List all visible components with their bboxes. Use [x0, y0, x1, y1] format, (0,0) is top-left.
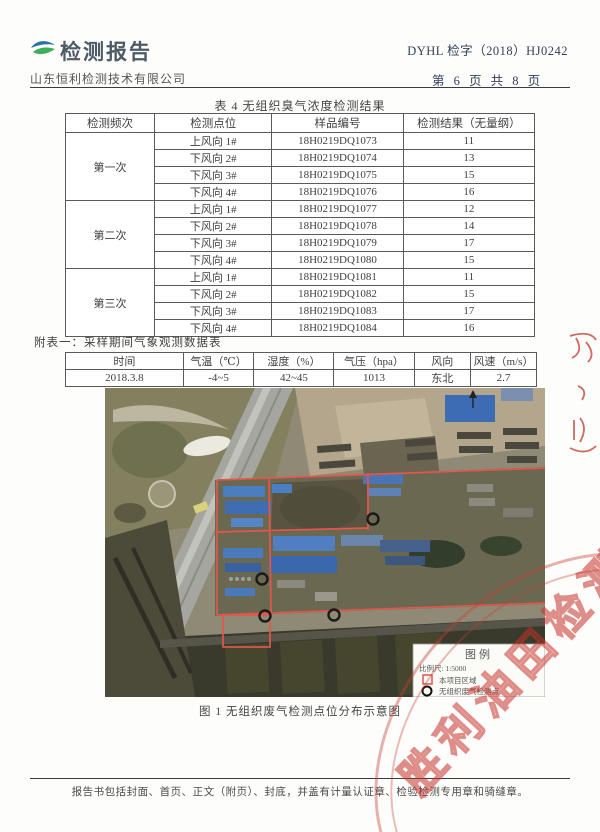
legend-area-label: 本项目区域 — [439, 675, 477, 685]
col-humidity: 湿度（%） — [254, 353, 334, 370]
sample-cell: 18H0219DQ1078 — [272, 218, 403, 235]
figure-caption: 图 1 无组织废气检测点位分布示意图 — [0, 703, 600, 719]
sample-cell: 18H0219DQ1083 — [272, 303, 403, 320]
frequency-cell: 第二次 — [66, 201, 155, 269]
result-cell: 17 — [403, 235, 534, 252]
company-logo-icon — [30, 38, 56, 65]
sample-cell: 18H0219DQ1079 — [272, 235, 403, 252]
sample-cell: 18H0219DQ1075 — [272, 167, 403, 184]
result-cell: 12 — [403, 201, 534, 218]
table-row: 第一次 上风向 1# 18H0219DQ1073 11 — [66, 133, 535, 150]
annex-table-label: 附表一：采样期间气象观测数据表 — [34, 334, 222, 350]
weather-data-row: 2018.3.8 -4~5 42~45 1013 东北 2.7 — [66, 370, 537, 387]
sample-cell: 18H0219DQ1077 — [272, 201, 403, 218]
report-title: 检测报告 — [60, 36, 152, 66]
sample-cell: 18H0219DQ1073 — [272, 133, 403, 150]
col-sample-id: 样品编号 — [272, 114, 403, 133]
legend-scale: 比例尺: 1:5000 — [419, 663, 467, 673]
table-row: 第二次 上风向 1# 18H0219DQ1077 12 — [66, 201, 535, 218]
result-cell: 11 — [403, 133, 534, 150]
wind-speed-cell: 2.7 — [471, 370, 537, 387]
result-cell: 16 — [403, 320, 534, 337]
result-cell: 15 — [403, 252, 534, 269]
legend-point-label: 无组织废气检测点 — [439, 686, 499, 696]
result-cell: 14 — [403, 218, 534, 235]
point-cell: 下风向 2# — [155, 286, 272, 303]
point-cell: 下风向 4# — [155, 184, 272, 201]
header-divider — [30, 87, 570, 88]
result-cell: 11 — [403, 269, 534, 286]
point-cell: 下风向 3# — [155, 303, 272, 320]
map-legend: 图例 比例尺: 1:5000 本项目区域 无组织废气检测点 — [413, 644, 545, 697]
humidity-cell: 42~45 — [254, 370, 334, 387]
report-page: 检测报告 山东恒利检测技术有限公司 DYHL 检字（2018）HJ0242 第 … — [0, 0, 600, 832]
result-cell: 15 — [403, 286, 534, 303]
point-cell: 上风向 1# — [155, 201, 272, 218]
point-cell: 下风向 2# — [155, 218, 272, 235]
header-right: DYHL 检字（2018）HJ0242 第 6 页 共 8 页 — [407, 40, 568, 89]
col-wind-direction: 风向 — [414, 353, 471, 370]
footer-divider — [30, 778, 570, 779]
result-cell: 13 — [403, 150, 534, 167]
temperature-cell: -4~5 — [183, 370, 254, 387]
table-row: 第三次 上风向 1# 18H0219DQ1081 11 — [66, 269, 535, 286]
col-frequency: 检测频次 — [66, 114, 155, 133]
point-cell: 上风向 1# — [155, 133, 272, 150]
sample-cell: 18H0219DQ1076 — [272, 184, 403, 201]
red-handwriting-marks — [562, 328, 600, 473]
sample-cell: 18H0219DQ1081 — [272, 269, 403, 286]
col-point: 检测点位 — [155, 114, 272, 133]
wind-direction-cell: 东北 — [414, 370, 471, 387]
weather-header-row: 时间 气温（℃） 湿度（%） 气压（hpa） 风向 风速（m/s） — [66, 353, 537, 370]
point-cell: 下风向 4# — [155, 252, 272, 269]
point-cell: 下风向 3# — [155, 167, 272, 184]
site-satellite-map: 图例 比例尺: 1:5000 本项目区域 无组织废气检测点 — [105, 388, 545, 697]
table4-title: 表 4 无组织臭气浓度检测结果 — [0, 97, 600, 114]
col-result: 检测结果（无量纲） — [403, 114, 534, 133]
col-pressure: 气压（hpa） — [334, 353, 414, 370]
time-cell: 2018.3.8 — [66, 370, 184, 387]
sample-cell: 18H0219DQ1074 — [272, 150, 403, 167]
odor-results-table: 检测频次 检测点位 样品编号 检测结果（无量纲） 第一次 上风向 1# 18H0… — [65, 113, 535, 337]
weather-table: 时间 气温（℃） 湿度（%） 气压（hpa） 风向 风速（m/s） 2018.3… — [65, 352, 537, 387]
col-time: 时间 — [66, 353, 184, 370]
frequency-cell: 第三次 — [66, 269, 155, 337]
result-cell: 16 — [403, 184, 534, 201]
table-header-row: 检测频次 检测点位 样品编号 检测结果（无量纲） — [66, 114, 535, 133]
legend-title: 图例 — [465, 647, 493, 661]
result-cell: 15 — [403, 167, 534, 184]
sample-cell: 18H0219DQ1084 — [272, 320, 403, 337]
point-cell: 上风向 1# — [155, 269, 272, 286]
report-number: DYHL 检字（2018）HJ0242 — [407, 40, 568, 59]
frequency-cell: 第一次 — [66, 133, 155, 201]
col-wind-speed: 风速（m/s） — [471, 353, 537, 370]
point-cell: 下风向 2# — [155, 150, 272, 167]
col-temperature: 气温（℃） — [183, 353, 254, 370]
pressure-cell: 1013 — [334, 370, 414, 387]
company-name: 山东恒利检测技术有限公司 — [30, 70, 186, 87]
result-cell: 17 — [403, 303, 534, 320]
sample-cell: 18H0219DQ1082 — [272, 286, 403, 303]
footer-note: 报告书包括封面、首页、正文（附页）、封底，并盖有计量认证章、检验检测专用章和骑缝… — [0, 784, 600, 799]
point-cell: 下风向 3# — [155, 235, 272, 252]
sample-cell: 18H0219DQ1080 — [272, 252, 403, 269]
header-left: 检测报告 山东恒利检测技术有限公司 — [30, 36, 186, 87]
